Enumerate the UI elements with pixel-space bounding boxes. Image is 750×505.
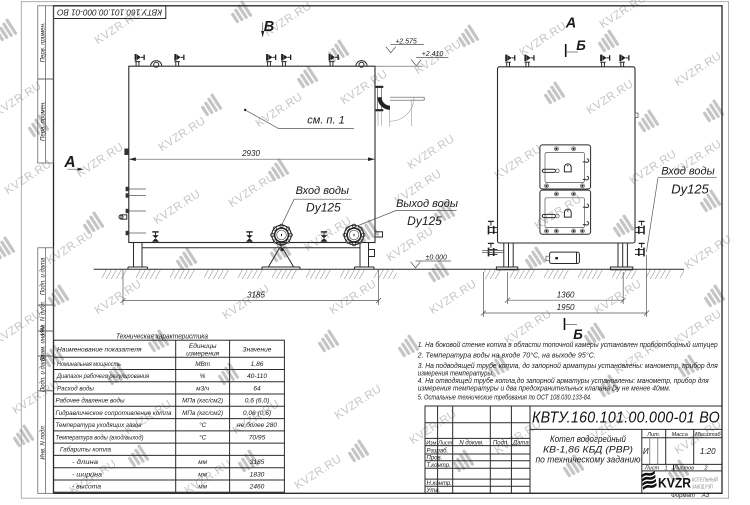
svg-text:Выход воды: Выход воды — [396, 198, 458, 210]
svg-text:4. На отводящей трубе котла,д: 4. На отводящей трубе котла,до запорной … — [418, 377, 709, 385]
svg-text:И: И — [643, 447, 649, 456]
svg-text:- высота: - высота — [72, 484, 101, 491]
svg-text:А: А — [565, 16, 576, 32]
svg-text:КВ-1,86 КБД (РВР): КВ-1,86 КБД (РВР) — [543, 444, 633, 454]
svg-text:В: В — [264, 19, 274, 35]
svg-text:МВт: МВт — [195, 361, 211, 368]
svg-text:КВТУ.160.101.00.000-01 ВО: КВТУ.160.101.00.000-01 ВО — [532, 410, 720, 427]
svg-text:5. Остальные технические треб: 5. Остальные технические требования по О… — [418, 394, 592, 402]
svg-text:Перв. примен.: Перв. примен. — [40, 22, 46, 62]
svg-text:Дата: Дата — [512, 440, 529, 446]
svg-text:Инв. N подл.: Инв. N подл. — [40, 425, 46, 460]
svg-text:3185: 3185 — [250, 459, 265, 466]
svg-text:Н.контр.: Н.контр. — [427, 481, 452, 487]
svg-text:МПа (кгс/см2): МПа (кгс/см2) — [182, 410, 223, 417]
svg-text:+2.410: +2.410 — [422, 51, 444, 58]
svg-text:Наименование показателя: Наименование показателя — [57, 346, 142, 353]
svg-text:- ширина: - ширина — [72, 471, 102, 478]
svg-text:70/95: 70/95 — [249, 434, 266, 441]
svg-text:Масштаб: Масштаб — [695, 432, 722, 438]
svg-text:Изм: Изм — [426, 440, 436, 446]
svg-text:±0.000: ±0.000 — [426, 255, 447, 262]
svg-text:Единицы: Единицы — [189, 342, 217, 350]
svg-text:измерения температуры и два пр: измерения температуры и два предохраните… — [418, 384, 671, 392]
svg-text:Значение: Значение — [243, 346, 272, 353]
svg-text:2: 2 — [703, 465, 707, 471]
svg-text:Разраб.: Разраб. — [427, 448, 449, 454]
svg-text:N докум.: N докум. — [459, 440, 483, 446]
svg-text:Диапазон рабочего регулировани: Диапазон рабочего регулирования — [56, 372, 149, 380]
svg-text:1360: 1360 — [557, 290, 575, 299]
svg-text:Лист: Лист — [644, 465, 660, 471]
svg-text:1830: 1830 — [250, 471, 265, 478]
svg-text:Пров.: Пров. — [427, 455, 443, 461]
svg-text:Т.контр.: Т.контр. — [427, 463, 451, 469]
svg-text:- длина: - длина — [72, 458, 98, 466]
svg-text:мм: мм — [198, 459, 207, 466]
svg-text:Б: Б — [576, 38, 586, 53]
svg-text:1950: 1950 — [557, 303, 575, 312]
svg-text:МПа (кгс/см2): МПа (кгс/см2) — [182, 398, 223, 405]
svg-text:2460: 2460 — [249, 484, 265, 491]
svg-text:°С: °С — [199, 421, 207, 429]
svg-text:KVZR: KVZR — [658, 475, 691, 491]
svg-text:измерения: измерения — [186, 351, 219, 358]
svg-text:Б: Б — [573, 327, 583, 342]
svg-text:Температура воды (вход/выход): Температура воды (вход/выход) — [56, 433, 144, 441]
svg-text:Номинальная мощность: Номинальная мощность — [57, 361, 121, 368]
svg-text:мм: мм — [198, 471, 207, 478]
svg-text:3. На подводящей трубе котла,: 3. На подводящей трубе котла, до запорно… — [418, 362, 718, 370]
svg-text:Габариты котла: Габариты котла — [60, 446, 111, 454]
svg-text:Котел водогрейный: Котел водогрейный — [550, 434, 626, 444]
svg-text:40-110: 40-110 — [247, 373, 267, 380]
svg-text:не более 280: не более 280 — [237, 421, 277, 429]
svg-text:Формат: Формат — [671, 493, 695, 499]
svg-text:КОТЕЛЬНЫЙ: КОТЕЛЬНЫЙ — [692, 476, 718, 484]
svg-text:64: 64 — [253, 385, 261, 392]
svg-text:Гидравлическое сопротивление к: Гидравлическое сопротивление котла — [56, 409, 172, 417]
svg-text:2. Температура воды на входе: 2. Температура воды на входе 70°С, на вы… — [417, 351, 596, 359]
svg-text:1,86: 1,86 — [251, 361, 264, 368]
svg-text:мм: мм — [198, 484, 207, 491]
svg-text:Вход воды: Вход воды — [296, 185, 349, 197]
svg-text:0,6 (6,0): 0,6 (6,0) — [245, 398, 270, 405]
svg-text:Перв. примен.: Перв. примен. — [40, 101, 46, 141]
svg-text:Подп.: Подп. — [493, 440, 509, 446]
svg-text:0,06 (0,6): 0,06 (0,6) — [243, 410, 271, 417]
svg-text:Расход воды: Расход воды — [57, 384, 94, 392]
svg-text:м3/ч: м3/ч — [196, 385, 210, 392]
svg-text:см. п. 1: см. п. 1 — [307, 115, 344, 127]
svg-text:1:20: 1:20 — [700, 447, 716, 456]
svg-text:3185: 3185 — [247, 291, 265, 300]
svg-text:1: 1 — [664, 465, 667, 471]
svg-text:КВТУ.160.101.00.000-01 ВО: КВТУ.160.101.00.000-01 ВО — [57, 8, 162, 18]
svg-text:Лист: Лист — [437, 440, 453, 446]
svg-text:А3: А3 — [701, 493, 710, 499]
svg-text:Листов: Листов — [673, 465, 694, 471]
svg-text:2930: 2930 — [241, 149, 260, 158]
svg-text:А: А — [63, 154, 75, 171]
svg-text:по техническому заданию: по техническому заданию — [536, 455, 641, 465]
svg-text:1. На боковой стенке котла в: 1. На боковой стенке котла в области топ… — [418, 341, 718, 349]
svg-text:Подп. и дата: Подп. и дата — [40, 354, 46, 392]
svg-text:Утв.: Утв. — [426, 488, 441, 494]
svg-text:Dy125: Dy125 — [306, 201, 341, 215]
svg-text:Техническая характеристика: Техническая характеристика — [116, 331, 208, 340]
svg-text:°С: °С — [199, 433, 207, 441]
svg-text:%: % — [200, 373, 206, 380]
svg-text:Температура уходящих газов: Температура уходящих газов — [56, 421, 143, 429]
svg-text:Dy125: Dy125 — [407, 214, 442, 228]
svg-text:Подп. и дата: Подп. и дата — [40, 257, 46, 295]
svg-text:Лит.: Лит. — [646, 432, 660, 438]
svg-text:Dy125: Dy125 — [671, 181, 709, 196]
svg-text:Масса: Масса — [672, 432, 688, 438]
svg-text:ЗАВОД РЭП: ЗАВОД РЭП — [692, 485, 713, 491]
svg-text:измерения температуры.: измерения температуры. — [418, 370, 494, 377]
svg-text:Рабочее давление воды: Рабочее давление воды — [56, 397, 125, 405]
svg-text:Вход воды: Вход воды — [661, 166, 714, 178]
